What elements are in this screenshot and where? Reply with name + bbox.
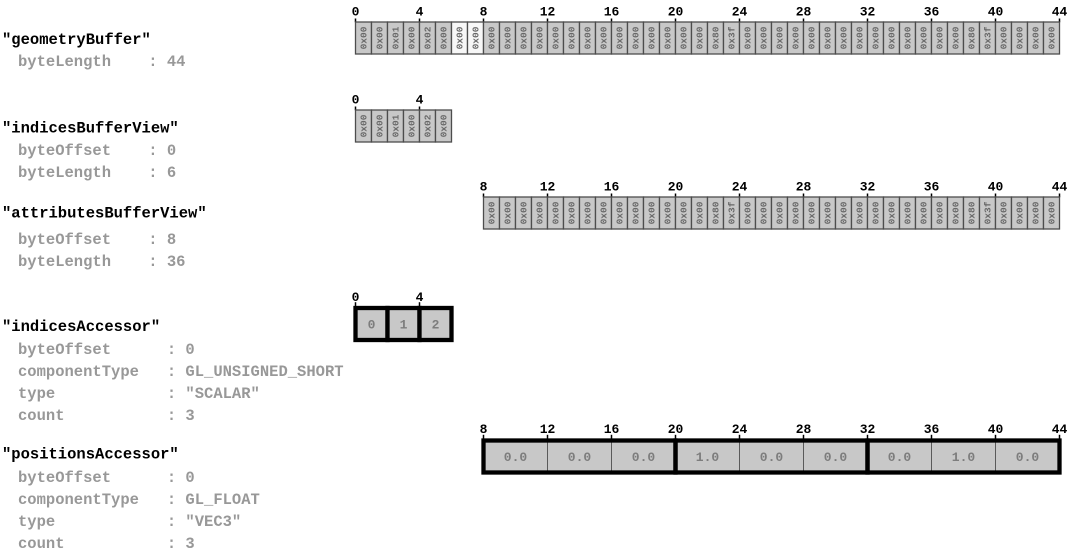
svg-text:0x00: 0x00	[743, 26, 754, 49]
svg-text:"positionsAccessor": "positionsAccessor"	[2, 446, 179, 464]
svg-text:0x00: 0x00	[647, 26, 658, 49]
svg-text:0x00: 0x00	[1047, 201, 1058, 224]
svg-text:0x00: 0x00	[599, 26, 610, 49]
svg-text:0x3f: 0x3f	[983, 26, 994, 49]
svg-text:componentType : GL_FLOAT: componentType : GL_FLOAT	[18, 491, 260, 509]
svg-text:0x00: 0x00	[647, 201, 658, 224]
svg-text:0x00: 0x00	[919, 26, 930, 49]
svg-text:0x00: 0x00	[1047, 26, 1058, 49]
svg-text:4: 4	[416, 92, 424, 107]
svg-text:0x00: 0x00	[919, 201, 930, 224]
svg-text:0x00: 0x00	[1031, 201, 1042, 224]
svg-text:0x80: 0x80	[967, 201, 978, 224]
svg-text:0x00: 0x00	[1031, 26, 1042, 49]
svg-text:0x00: 0x00	[999, 26, 1010, 49]
svg-text:8: 8	[480, 4, 488, 19]
svg-text:0x00: 0x00	[615, 201, 626, 224]
svg-text:0x00: 0x00	[487, 26, 498, 49]
svg-text:0x00: 0x00	[439, 114, 450, 137]
svg-text:byteLength : 6: byteLength : 6	[18, 164, 176, 182]
svg-text:0x00: 0x00	[551, 201, 562, 224]
svg-text:0x00: 0x00	[567, 201, 578, 224]
svg-text:0x00: 0x00	[519, 26, 530, 49]
svg-text:count : 3: count : 3	[18, 407, 195, 425]
svg-text:count : 3: count : 3	[18, 535, 195, 553]
svg-text:0x00: 0x00	[663, 201, 674, 224]
svg-text:0.0: 0.0	[632, 450, 656, 465]
svg-text:0x80: 0x80	[967, 26, 978, 49]
svg-text:0x00: 0x00	[455, 26, 466, 49]
svg-text:0x3f: 0x3f	[727, 201, 738, 224]
svg-text:0x00: 0x00	[807, 26, 818, 49]
svg-text:0x00: 0x00	[535, 201, 546, 224]
svg-text:0: 0	[368, 318, 376, 333]
svg-text:12: 12	[540, 179, 556, 194]
svg-text:0x00: 0x00	[823, 26, 834, 49]
svg-text:0x00: 0x00	[583, 26, 594, 49]
svg-text:byteOffset : 8: byteOffset : 8	[18, 231, 176, 249]
svg-text:20: 20	[668, 4, 684, 19]
svg-text:0x00: 0x00	[679, 201, 690, 224]
svg-text:0x00: 0x00	[903, 26, 914, 49]
svg-text:16: 16	[604, 4, 620, 19]
svg-text:0x00: 0x00	[631, 26, 642, 49]
svg-text:0x02: 0x02	[423, 114, 434, 137]
svg-text:0x00: 0x00	[903, 201, 914, 224]
svg-text:0x00: 0x00	[631, 201, 642, 224]
svg-text:8: 8	[480, 179, 488, 194]
svg-text:0x00: 0x00	[999, 201, 1010, 224]
svg-text:"indicesBufferView": "indicesBufferView"	[2, 120, 179, 138]
svg-text:0x00: 0x00	[759, 26, 770, 49]
svg-text:0x00: 0x00	[887, 201, 898, 224]
svg-text:0x00: 0x00	[487, 201, 498, 224]
svg-text:0x00: 0x00	[471, 26, 482, 49]
svg-text:0x00: 0x00	[503, 201, 514, 224]
svg-text:0x00: 0x00	[951, 201, 962, 224]
svg-text:0x00: 0x00	[663, 26, 674, 49]
svg-text:byteLength : 36: byteLength : 36	[18, 253, 185, 271]
svg-text:0x00: 0x00	[407, 26, 418, 49]
svg-text:0x00: 0x00	[551, 26, 562, 49]
svg-text:28: 28	[796, 4, 812, 19]
svg-text:0x01: 0x01	[391, 26, 402, 49]
svg-text:0x00: 0x00	[823, 201, 834, 224]
svg-text:0x00: 0x00	[695, 26, 706, 49]
svg-text:0x00: 0x00	[807, 201, 818, 224]
svg-text:0x00: 0x00	[599, 201, 610, 224]
svg-text:2: 2	[432, 318, 440, 333]
svg-text:0x00: 0x00	[791, 201, 802, 224]
svg-text:0x00: 0x00	[791, 26, 802, 49]
svg-text:0x00: 0x00	[839, 201, 850, 224]
svg-text:0x3f: 0x3f	[727, 26, 738, 49]
svg-text:32: 32	[860, 179, 876, 194]
svg-text:0x00: 0x00	[407, 114, 418, 137]
svg-text:0x00: 0x00	[775, 201, 786, 224]
svg-text:0x00: 0x00	[759, 201, 770, 224]
svg-text:4: 4	[416, 4, 424, 19]
svg-text:40: 40	[988, 179, 1004, 194]
svg-text:0x80: 0x80	[711, 26, 722, 49]
svg-text:0x00: 0x00	[775, 26, 786, 49]
svg-text:0x00: 0x00	[1015, 201, 1026, 224]
svg-text:byteLength : 44: byteLength : 44	[18, 53, 185, 71]
svg-text:0x00: 0x00	[439, 26, 450, 49]
svg-text:0x00: 0x00	[583, 201, 594, 224]
svg-text:44: 44	[1052, 4, 1068, 19]
svg-text:0x00: 0x00	[1015, 26, 1026, 49]
svg-text:0x00: 0x00	[951, 26, 962, 49]
svg-text:40: 40	[988, 4, 1004, 19]
svg-text:0x00: 0x00	[695, 201, 706, 224]
svg-text:0x02: 0x02	[423, 26, 434, 49]
svg-text:0x3f: 0x3f	[983, 201, 994, 224]
svg-text:44: 44	[1052, 179, 1068, 194]
svg-text:0x00: 0x00	[567, 26, 578, 49]
svg-text:36: 36	[924, 4, 940, 19]
svg-text:componentType : GL_UNSIGNED_: componentType : GL_UNSIGNED_SHORT	[18, 363, 344, 381]
svg-text:0x00: 0x00	[375, 114, 386, 137]
svg-text:1.0: 1.0	[952, 450, 976, 465]
svg-text:"attributesBufferView": "attributesBufferView"	[2, 205, 207, 223]
svg-text:12: 12	[540, 4, 556, 19]
svg-text:byteOffset : 0: byteOffset : 0	[18, 142, 176, 160]
svg-text:1.0: 1.0	[696, 450, 720, 465]
svg-text:0x00: 0x00	[359, 26, 370, 49]
svg-text:"indicesAccessor": "indicesAccessor"	[2, 318, 160, 336]
svg-text:0x00: 0x00	[615, 26, 626, 49]
svg-text:0x00: 0x00	[519, 201, 530, 224]
svg-text:32: 32	[860, 4, 876, 19]
svg-text:0x01: 0x01	[391, 114, 402, 137]
svg-text:0x00: 0x00	[935, 26, 946, 49]
svg-text:0x00: 0x00	[935, 201, 946, 224]
svg-text:0x00: 0x00	[871, 201, 882, 224]
svg-text:0x00: 0x00	[535, 26, 546, 49]
svg-text:0.0: 0.0	[504, 450, 528, 465]
svg-text:0x00: 0x00	[359, 114, 370, 137]
svg-text:0x00: 0x00	[503, 26, 514, 49]
svg-text:"geometryBuffer": "geometryBuffer"	[2, 31, 151, 49]
svg-text:0.0: 0.0	[824, 450, 848, 465]
svg-text:byteOffset : 0: byteOffset : 0	[18, 341, 195, 359]
svg-text:0x00: 0x00	[743, 201, 754, 224]
svg-text:1: 1	[400, 318, 408, 333]
svg-text:byteOffset : 0: byteOffset : 0	[18, 469, 195, 487]
svg-text:0.0: 0.0	[1016, 450, 1040, 465]
svg-text:type : "SCALAR": type : "SCALAR"	[18, 385, 260, 403]
svg-text:0x00: 0x00	[679, 26, 690, 49]
svg-text:0x00: 0x00	[871, 26, 882, 49]
svg-text:36: 36	[924, 179, 940, 194]
svg-text:0: 0	[352, 92, 360, 107]
svg-text:0x00: 0x00	[855, 201, 866, 224]
svg-text:24: 24	[732, 4, 748, 19]
svg-text:0x00: 0x00	[375, 26, 386, 49]
svg-text:type : "VEC3": type : "VEC3"	[18, 513, 241, 531]
svg-text:0.0: 0.0	[888, 450, 912, 465]
svg-text:28: 28	[796, 179, 812, 194]
svg-text:0x80: 0x80	[711, 201, 722, 224]
svg-text:24: 24	[732, 179, 748, 194]
svg-text:0x00: 0x00	[839, 26, 850, 49]
svg-text:0.0: 0.0	[760, 450, 784, 465]
svg-text:16: 16	[604, 179, 620, 194]
svg-text:20: 20	[668, 179, 684, 194]
svg-text:0: 0	[352, 4, 360, 19]
svg-text:0.0: 0.0	[568, 450, 592, 465]
svg-text:0x00: 0x00	[887, 26, 898, 49]
svg-text:0x00: 0x00	[855, 26, 866, 49]
